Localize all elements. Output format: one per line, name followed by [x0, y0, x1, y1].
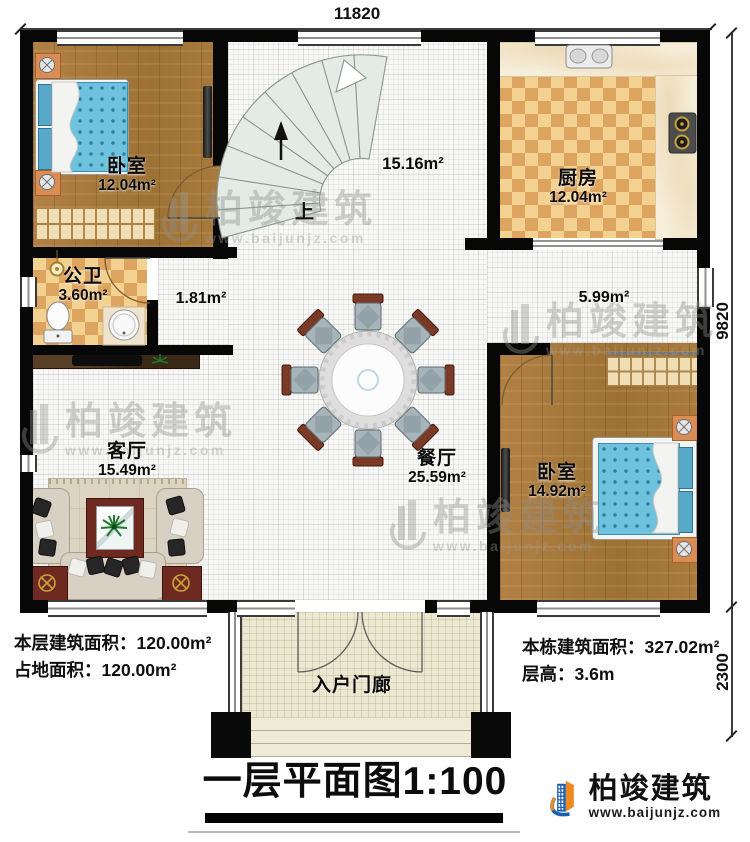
- room-area: 12.04m²: [52, 177, 202, 194]
- stats-label: 占地面积：: [14, 660, 102, 680]
- wall: [697, 30, 710, 268]
- stats-label: 层高：: [522, 664, 575, 684]
- room-label-corridor-a: 1.81m²: [126, 290, 276, 308]
- room-label-bedroom1: 卧室 12.04m²: [52, 156, 202, 195]
- window: [57, 30, 183, 46]
- coffee-table-glass: [96, 506, 134, 550]
- floor-plan: 11820 9820 2300 柏竣建筑www.baijunjz.com 柏竣建…: [0, 0, 750, 842]
- brand-logo-icon: [546, 766, 581, 830]
- bedroom2-closet-line: [607, 352, 697, 355]
- stairs-up-label: 上: [295, 197, 314, 224]
- wall: [421, 30, 535, 42]
- bed1-nightstand-top: [35, 53, 61, 79]
- wall: [20, 600, 48, 613]
- window: [237, 600, 295, 617]
- window: [537, 600, 660, 617]
- window: [437, 600, 470, 617]
- stats-value: 3.6m: [575, 664, 615, 684]
- page-title: 一层平面图1:100: [165, 750, 545, 806]
- stats-right: 本栋建筑面积：327.02m² 层高：3.6m: [522, 634, 719, 688]
- window: [697, 268, 714, 307]
- wall: [20, 472, 33, 613]
- stats-label: 本层建筑面积：: [14, 633, 137, 653]
- bed2-nightstand-top: [672, 415, 698, 441]
- porch-railing-right: [480, 612, 494, 716]
- title-underline-thin: [188, 831, 520, 833]
- bedroom1-tv: [203, 86, 212, 158]
- stats-building-total: 本栋建筑面积：327.02m²: [522, 634, 719, 661]
- porch-floor: [228, 612, 490, 718]
- sofa-pillow: [139, 561, 156, 578]
- wall: [425, 600, 437, 613]
- sofa-pillow: [36, 521, 54, 539]
- kitchen-counter-top: [499, 42, 699, 77]
- wall: [20, 30, 33, 277]
- wall: [20, 345, 233, 355]
- wall: [20, 247, 237, 258]
- kitchen-floor: [499, 75, 657, 238]
- bed1-headboard-cushion: [38, 84, 52, 126]
- side-table-left: [28, 566, 68, 602]
- window: [298, 30, 421, 46]
- bed2-headboard-cushion: [678, 447, 693, 489]
- bed2-nightstand-bottom: [672, 537, 698, 563]
- stats-label: 本栋建筑面积：: [522, 637, 645, 657]
- kitchen-counter-right: [655, 75, 699, 240]
- room-area: 15.49m²: [52, 462, 202, 479]
- wall: [487, 42, 500, 250]
- room-name: 卧室: [482, 462, 632, 483]
- room-name: 入户门廊: [277, 675, 427, 696]
- stats-value: 327.02m²: [645, 637, 720, 657]
- bed2-headboard-cushion: [678, 491, 693, 533]
- bed1-headboard-cushion: [38, 128, 52, 170]
- stats-value: 120.00m²: [102, 660, 177, 680]
- window: [20, 455, 37, 472]
- title-underline-bar: [205, 813, 503, 823]
- wall: [20, 307, 33, 455]
- bedroom1-wardrobe: [36, 208, 155, 240]
- room-area: 1.81m²: [126, 290, 276, 308]
- room-name: 客厅: [52, 441, 202, 462]
- wall: [465, 238, 533, 250]
- brand-website: www.baijunjz.com: [589, 805, 722, 820]
- room-area: 12.04m²: [503, 189, 653, 206]
- room-name: 厨房: [503, 168, 653, 189]
- wall: [697, 307, 710, 613]
- title-scale: 1:100: [403, 760, 508, 803]
- sofa-pillow: [87, 557, 105, 575]
- dimension-right-upper-value: 9820: [713, 298, 733, 344]
- sofa-pillow: [39, 539, 56, 556]
- stats-footprint: 占地面积：120.00m²: [14, 657, 211, 684]
- room-label-hall: 15.16m²: [338, 155, 488, 173]
- wall: [663, 238, 710, 250]
- room-area: 15.16m²: [338, 155, 488, 173]
- room-area: 14.92m²: [482, 483, 632, 500]
- window: [535, 30, 660, 46]
- brand-logo: 柏竣建筑 www.baijunjz.com: [546, 766, 750, 830]
- wall: [213, 42, 228, 166]
- dimension-line-right: [731, 33, 733, 737]
- brand-name: 柏竣建筑: [589, 773, 713, 805]
- porch-railing-left: [228, 612, 242, 716]
- sofa-pillow: [168, 539, 184, 555]
- title-text: 一层平面图: [203, 760, 403, 803]
- room-label-living: 客厅 15.49m²: [52, 441, 202, 480]
- stats-storey-height: 层高：3.6m: [522, 661, 719, 688]
- wall: [660, 600, 710, 613]
- stats-floor-area: 本层建筑面积：120.00m²: [14, 630, 211, 657]
- stats-value: 120.00m²: [137, 633, 212, 653]
- room-label-bedroom2: 卧室 14.92m²: [482, 462, 632, 501]
- stats-left: 本层建筑面积：120.00m² 占地面积：120.00m²: [14, 630, 211, 684]
- room-label-corridor-b: 5.99m²: [529, 289, 679, 307]
- room-name: 卧室: [52, 156, 202, 177]
- room-area: 5.99m²: [529, 289, 679, 307]
- side-table-right: [162, 566, 202, 602]
- kitchen-slider: [533, 241, 663, 246]
- dimension-top-value: 11820: [317, 4, 397, 24]
- wall: [183, 30, 298, 42]
- bedroom2-wardrobe: [607, 357, 699, 386]
- window: [48, 600, 207, 617]
- living-tv: [72, 355, 142, 366]
- room-name: 公卫: [8, 266, 158, 287]
- hall-dining-floor: [228, 42, 487, 600]
- room-label-porch: 入户门廊: [277, 675, 427, 696]
- room-label-kitchen: 厨房 12.04m²: [503, 168, 653, 207]
